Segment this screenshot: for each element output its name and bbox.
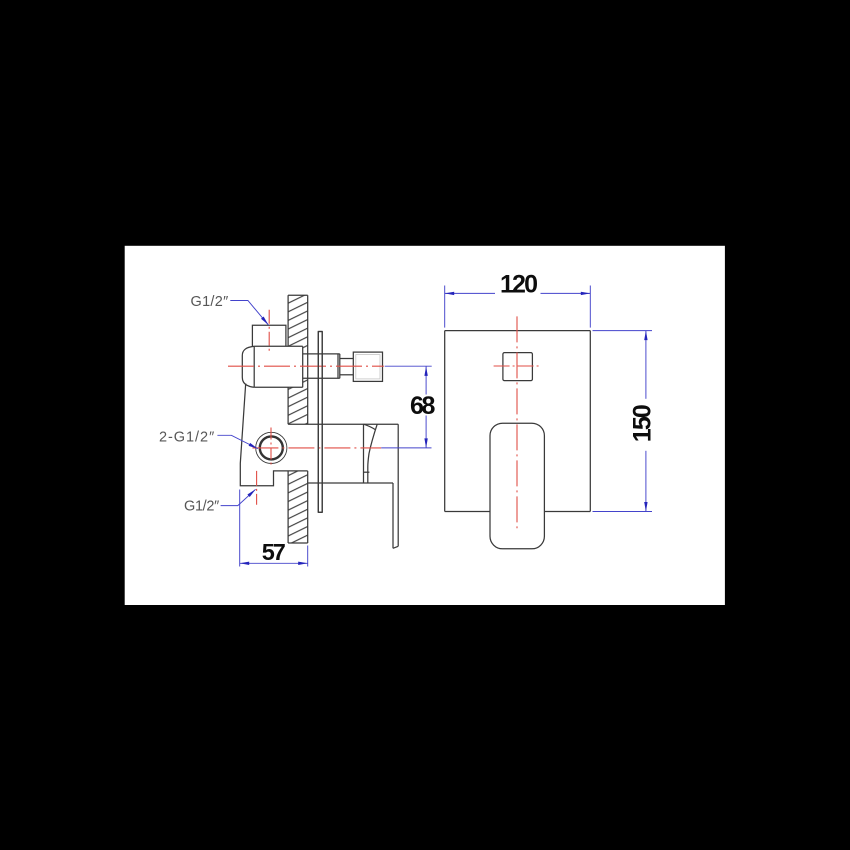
svg-text:150: 150 — [629, 404, 657, 442]
svg-text:G1/2″: G1/2″ — [191, 294, 230, 310]
svg-text:2-G1/2″: 2-G1/2″ — [159, 429, 215, 445]
svg-text:G1/2″: G1/2″ — [184, 498, 220, 514]
svg-text:57: 57 — [262, 539, 286, 565]
svg-text:120: 120 — [500, 271, 538, 299]
svg-text:68: 68 — [410, 392, 436, 420]
